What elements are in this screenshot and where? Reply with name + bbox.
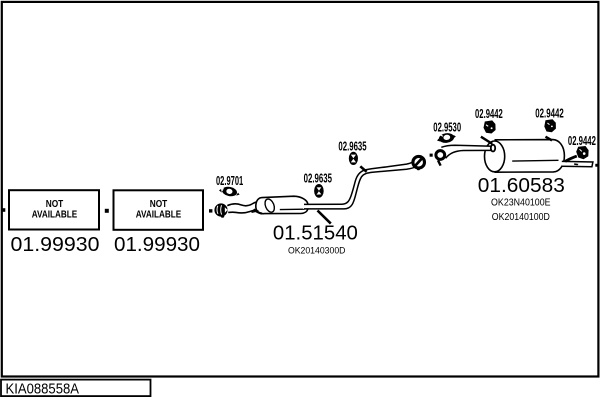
svg-text:NOT: NOT [46,199,64,210]
svg-text:NOT: NOT [150,199,168,210]
svg-text:01.99930: 01.99930 [11,234,100,256]
svg-text:01.99930: 01.99930 [114,234,200,256]
svg-text:KIA088558A: KIA088558A [6,381,80,397]
svg-text:02.9530: 02.9530 [433,120,461,135]
svg-text:AVAILABLE: AVAILABLE [136,210,182,221]
svg-text:OK20140100D: OK20140100D [492,211,550,223]
svg-text:OK23N40100E: OK23N40100E [491,196,551,208]
svg-text:02.9635: 02.9635 [338,139,366,154]
svg-text:02.9701: 02.9701 [216,173,243,188]
svg-text:02.9635: 02.9635 [304,170,332,185]
svg-text:AVAILABLE: AVAILABLE [32,210,78,221]
svg-text:02.9442: 02.9442 [475,106,503,121]
svg-text:OK20140300D: OK20140300D [288,245,346,256]
svg-text:02.9442: 02.9442 [535,105,564,120]
svg-text:01.60583: 01.60583 [478,175,565,197]
svg-text:02.9442: 02.9442 [568,133,596,148]
svg-text:01.51540: 01.51540 [273,223,358,245]
